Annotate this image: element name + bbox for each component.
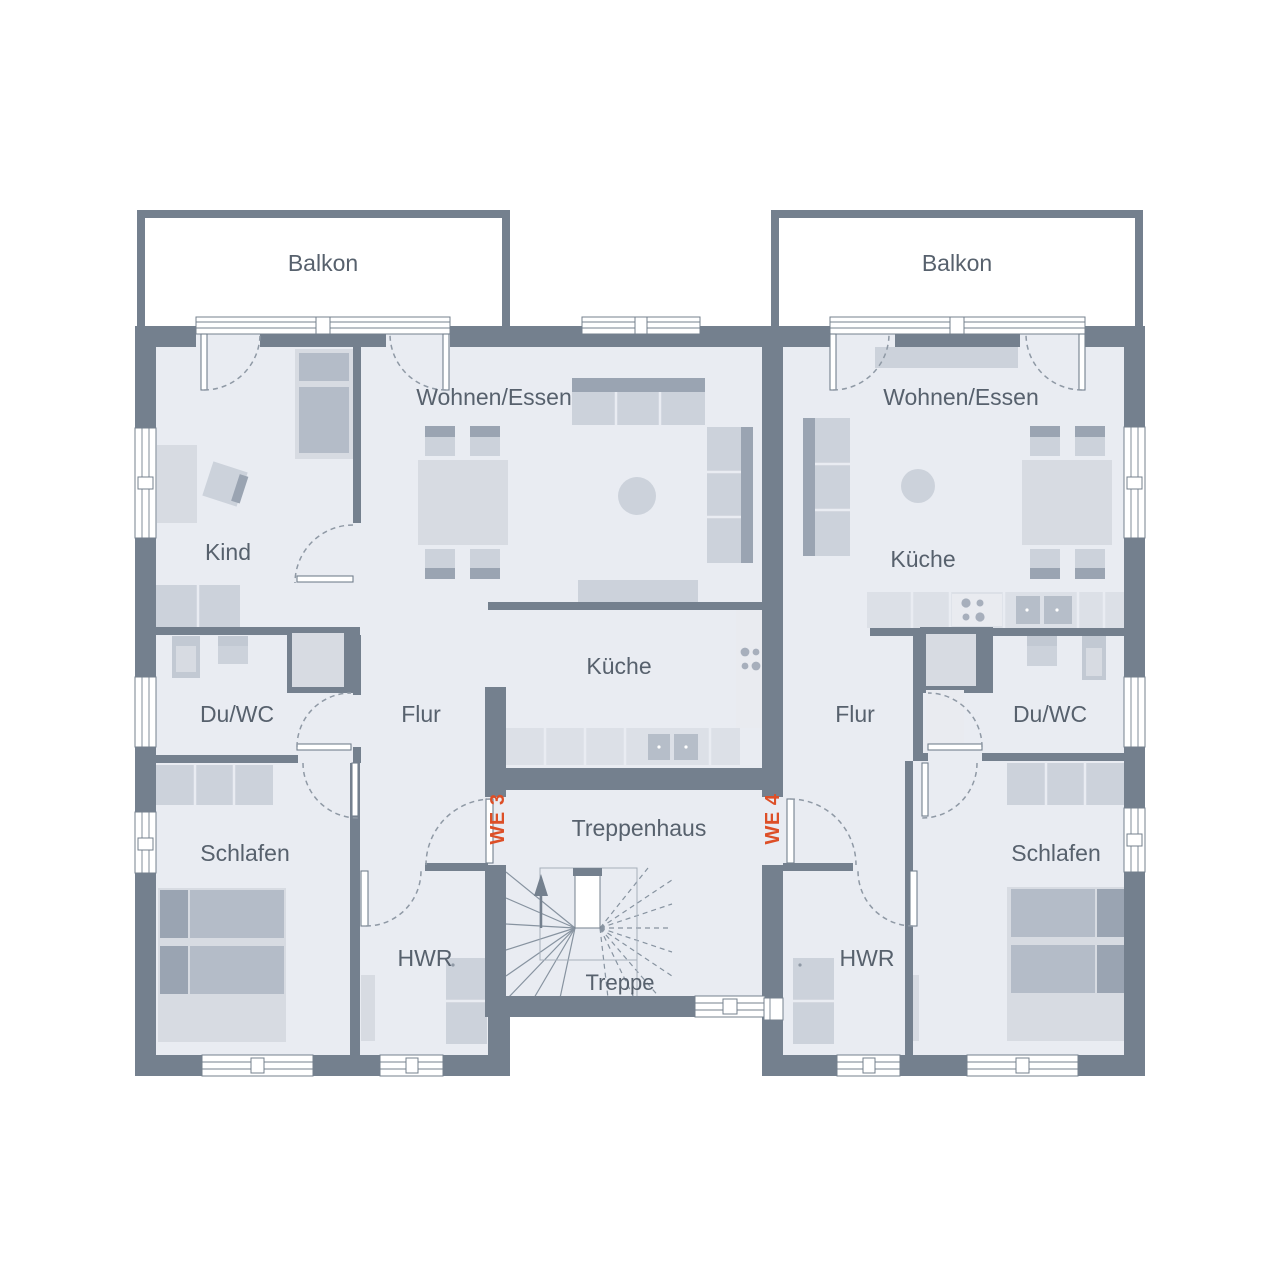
label-flur-left: Flur xyxy=(401,701,441,727)
label-treppe: Treppe xyxy=(586,970,655,995)
balcony-door-leaf xyxy=(830,334,836,390)
rug-right xyxy=(901,469,935,503)
label-hwr-right: HWR xyxy=(840,945,895,971)
sofa-left-horizontal xyxy=(572,378,705,425)
label-balkon-right: Balkon xyxy=(922,250,992,276)
sofa-left-vertical xyxy=(707,427,753,563)
window-treppenhaus xyxy=(695,996,765,1017)
window-hwr-right xyxy=(837,1055,900,1076)
sofa-right-vertical xyxy=(803,418,850,556)
balcony-doors-frame-right xyxy=(830,317,1085,334)
door-leaf-schlafen-right xyxy=(922,763,928,816)
label-kueche-right: Küche xyxy=(890,546,955,572)
bed-kind xyxy=(295,349,353,459)
label-kind: Kind xyxy=(205,539,251,565)
window-top-center xyxy=(582,317,700,334)
window-duwc-right xyxy=(1124,677,1145,747)
balcony-door-leaf xyxy=(443,334,449,390)
floor-area xyxy=(135,326,1145,1076)
window-schlafen-right xyxy=(1124,808,1145,872)
label-schlafen-right: Schlafen xyxy=(1011,840,1101,866)
wardrobe-right xyxy=(1007,763,1124,805)
door-leaf-kind xyxy=(297,576,353,582)
window-hwr-left xyxy=(380,1055,443,1076)
door-leaf-duwc-right xyxy=(928,744,982,750)
kitchen-right xyxy=(867,592,1127,628)
desk-kind xyxy=(157,445,197,523)
label-treppenhaus: Treppenhaus xyxy=(572,815,707,841)
dresser-kind xyxy=(156,585,240,627)
window-wohnen-right xyxy=(1124,427,1145,538)
label-kueche-left: Küche xyxy=(586,653,651,679)
label-we4: WE 4 xyxy=(762,793,784,844)
entry-door-we4 xyxy=(787,799,794,863)
label-we3: WE 3 xyxy=(487,794,509,845)
bed-right xyxy=(1007,887,1127,1041)
bed-left xyxy=(158,888,286,1042)
door-leaf-hwr-left xyxy=(361,871,368,926)
wardrobe-left xyxy=(156,765,273,805)
door-leaf-schlafen-left xyxy=(352,763,358,816)
balcony-door-leaf xyxy=(201,334,207,390)
rug-left xyxy=(618,477,656,515)
window-kind xyxy=(135,428,156,538)
door-leaf-hwr-right xyxy=(910,871,917,926)
floor-plan-drawing: Balkon Balkon Wohnen/Essen Wohnen/Essen … xyxy=(0,0,1280,1280)
balcony-door-leaf xyxy=(1079,334,1085,390)
window-recess xyxy=(764,998,783,1020)
label-duwc-left: Du/WC xyxy=(200,701,274,727)
label-wohnen-essen-right: Wohnen/Essen xyxy=(883,384,1039,410)
window-schlafen-left xyxy=(135,812,156,873)
label-wohnen-essen-left: Wohnen/Essen xyxy=(416,384,572,410)
sideboard-left xyxy=(578,580,698,602)
window-duwc-left xyxy=(135,677,156,747)
floor-plan-page: Balkon Balkon Wohnen/Essen Wohnen/Essen … xyxy=(0,0,1280,1280)
sideboard-right xyxy=(875,347,1018,368)
label-flur-right: Flur xyxy=(835,701,875,727)
balcony-doors-frame-left xyxy=(196,317,450,334)
label-duwc-right: Du/WC xyxy=(1013,701,1087,727)
window-schlafen-left-bottom xyxy=(202,1055,313,1076)
label-hwr-left: HWR xyxy=(398,945,453,971)
window-schlafen-right-bottom xyxy=(967,1055,1078,1076)
label-schlafen-left: Schlafen xyxy=(200,840,290,866)
label-balkon-left: Balkon xyxy=(288,250,358,276)
door-leaf-duwc-left xyxy=(297,744,351,750)
